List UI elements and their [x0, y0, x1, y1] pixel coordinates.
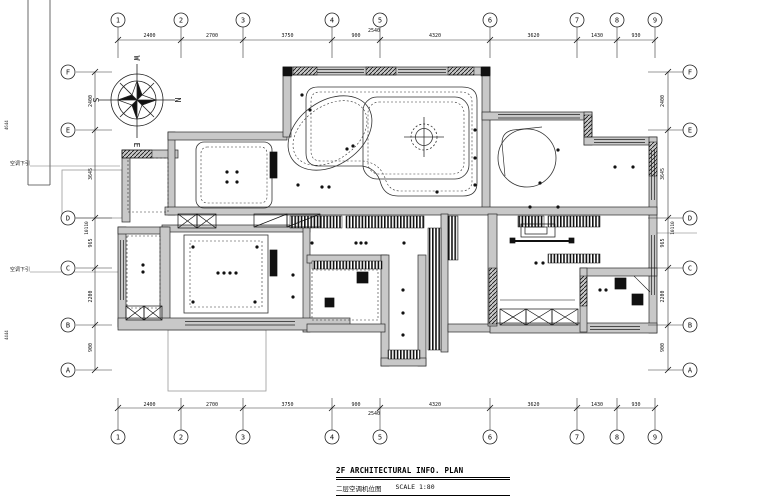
grid-bubble-bottom-4-label: 4	[330, 434, 334, 442]
grid-bubble-bottom-7-label: 7	[575, 434, 579, 442]
grid-bubble-left-E-label: E	[66, 127, 70, 135]
frame-label-2: 4444	[4, 330, 9, 340]
dim-left-4: 900	[88, 343, 94, 352]
dim-right-total: 10110	[670, 221, 676, 235]
frame-label-1: 4644	[4, 120, 9, 130]
dim-top-2: 3750	[281, 33, 293, 39]
dim-bottom-1: 2700	[206, 402, 218, 408]
grid-bubble-top-4-label: 4	[330, 17, 334, 25]
dim-bottom-6: 1430	[591, 402, 603, 408]
dim-bottom-4: 4320	[429, 402, 441, 408]
dim-top-4: 4320	[429, 33, 441, 39]
dim-left-2: 965	[88, 238, 94, 247]
dim-left-3: 2200	[88, 290, 94, 302]
dim-bottom-0: 2400	[143, 402, 155, 408]
grid-bubble-top-9-label: 9	[653, 17, 657, 25]
grid-bubble-top-7-label: 7	[575, 17, 579, 25]
compass-west-label: W	[132, 56, 141, 61]
sheet-title-en: 2F ARCHITECTURAL INFO. PLAN	[336, 466, 510, 480]
dim-bottom-5: 3620	[527, 402, 539, 408]
grid-bubble-bottom-9-label: 9	[653, 434, 657, 442]
grid-bubble-right-B-label: B	[688, 322, 692, 330]
dim-right-0: 2400	[660, 95, 666, 107]
grid-bubble-left-D-label: D	[66, 215, 70, 223]
grid-bubble-right-D-label: D	[688, 215, 692, 223]
grid-bubble-right-F-label: F	[688, 69, 692, 77]
dim-top-7: 930	[631, 33, 640, 39]
compass-north-label: N	[173, 98, 182, 103]
dim-top-0: 2400	[143, 33, 155, 39]
chandelier-icon	[404, 117, 444, 157]
dim-top-extra: 2540	[368, 28, 380, 34]
hatch-layer	[122, 67, 657, 324]
grid-bubble-bottom-1-label: 1	[116, 434, 120, 442]
leader-note-1: 空调下引	[10, 160, 30, 167]
grid-bubble-left-F-label: F	[66, 69, 70, 77]
grid-bubble-bottom-5-label: 5	[378, 434, 382, 442]
dim-right-4: 900	[660, 343, 666, 352]
dim-top-1: 2700	[206, 33, 218, 39]
curtain-track	[510, 238, 574, 243]
grid-bubble-top-8-label: 8	[615, 17, 619, 25]
dim-top-3: 900	[351, 33, 360, 39]
grid-bubble-left-B-label: B	[66, 322, 70, 330]
dim-top-6: 1430	[591, 33, 603, 39]
dim-left-0: 2400	[88, 95, 94, 107]
dim-left-1: 3645	[88, 168, 94, 180]
dim-bottom-7: 930	[631, 402, 640, 408]
dim-top-5: 3620	[527, 33, 539, 39]
title-block: 2F ARCHITECTURAL INFO. PLAN 二层空调机位图 SCAL…	[336, 466, 510, 496]
dim-bottom-extra: 2540	[368, 411, 380, 417]
grid-bubble-right-C-label: C	[688, 265, 692, 273]
leader-note-2: 空调下引	[10, 266, 30, 273]
grid-bubble-bottom-3-label: 3	[241, 434, 245, 442]
grid-bubble-left-C-label: C	[66, 265, 70, 273]
grid-bubble-bottom-2-label: 2	[179, 434, 183, 442]
dim-right-3: 2200	[660, 290, 666, 302]
dim-bottom-3: 900	[351, 402, 360, 408]
grid-bubble-right-E-label: E	[688, 127, 692, 135]
grid-bubble-bottom-8-label: 8	[615, 434, 619, 442]
floorplan-canvas: N S E W 11223344556677889924002400270027…	[0, 0, 760, 499]
sheet-frame	[28, 0, 50, 185]
floor-plan-drawing: N S E W 11223344556677889924002400270027…	[0, 0, 760, 499]
dim-right-1: 3645	[660, 168, 666, 180]
grid-bubble-top-6-label: 6	[488, 17, 492, 25]
compass-east-label: E	[132, 143, 141, 148]
dim-right-2: 965	[660, 238, 666, 247]
grid-bubble-top-5-label: 5	[378, 17, 382, 25]
grid-bubble-bottom-6-label: 6	[488, 434, 492, 442]
grid-bubble-top-1-label: 1	[116, 17, 120, 25]
dim-bottom-2: 3750	[281, 402, 293, 408]
dim-left-total: 10110	[84, 221, 90, 235]
grid-bubble-top-2-label: 2	[179, 17, 183, 25]
sheet-title-cn: 二层空调机位图	[336, 483, 382, 493]
grid-bubble-top-3-label: 3	[241, 17, 245, 25]
sheet-scale: SCALE 1:80	[396, 483, 435, 493]
